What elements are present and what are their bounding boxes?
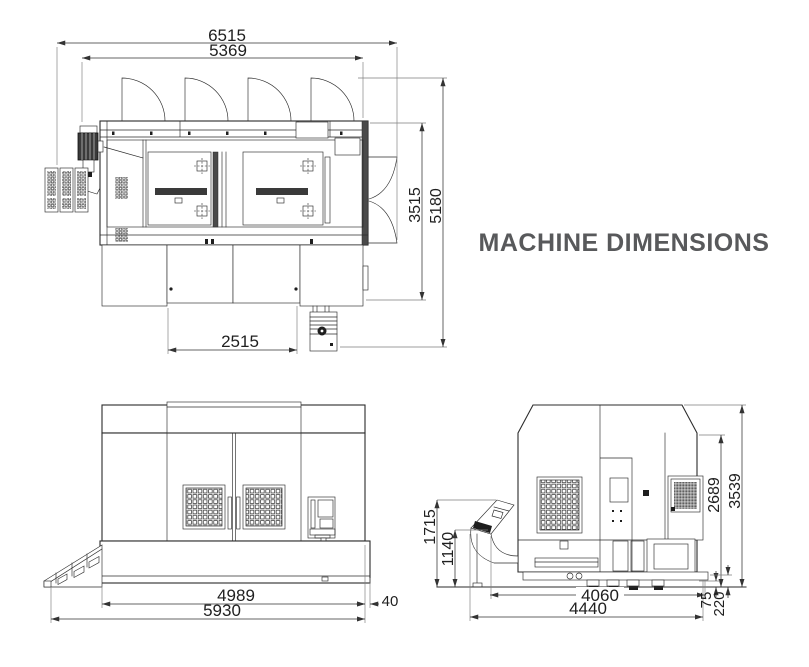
dim-label-5369: 5369 bbox=[209, 41, 247, 60]
base-cabinets bbox=[102, 245, 368, 306]
machine-dimensions-page: 6515 5369 3515 5180 2515 MACHINE DIMENSI… bbox=[0, 0, 809, 667]
dim-label-1140: 1140 bbox=[440, 532, 457, 567]
side-vent-window bbox=[537, 477, 582, 533]
dim-label-3515: 3515 bbox=[407, 187, 424, 223]
dim-label-1715: 1715 bbox=[422, 509, 439, 545]
door-window-right bbox=[243, 485, 285, 529]
vent-panels bbox=[45, 168, 88, 212]
side-base bbox=[523, 572, 708, 580]
dim-label-220: 220 bbox=[711, 591, 728, 616]
dim-label-5930: 5930 bbox=[203, 601, 241, 620]
hydraulic-unit bbox=[310, 306, 337, 351]
page-title: MACHINE DIMENSIONS bbox=[479, 229, 770, 257]
dim-label-2689: 2689 bbox=[706, 477, 723, 513]
machine-dimensions-drawing: 6515 5369 3515 5180 2515 MACHINE DIMENSI… bbox=[0, 0, 809, 667]
door-window-left bbox=[183, 485, 225, 529]
dim-label-3539: 3539 bbox=[727, 473, 744, 509]
front-base bbox=[100, 541, 370, 583]
dim-label-2515: 2515 bbox=[221, 332, 259, 351]
dim-label-40: 40 bbox=[382, 593, 399, 610]
dim-label-5180: 5180 bbox=[428, 188, 445, 224]
side-rear-window bbox=[668, 476, 703, 540]
dim-label-4440: 4440 bbox=[569, 599, 607, 618]
